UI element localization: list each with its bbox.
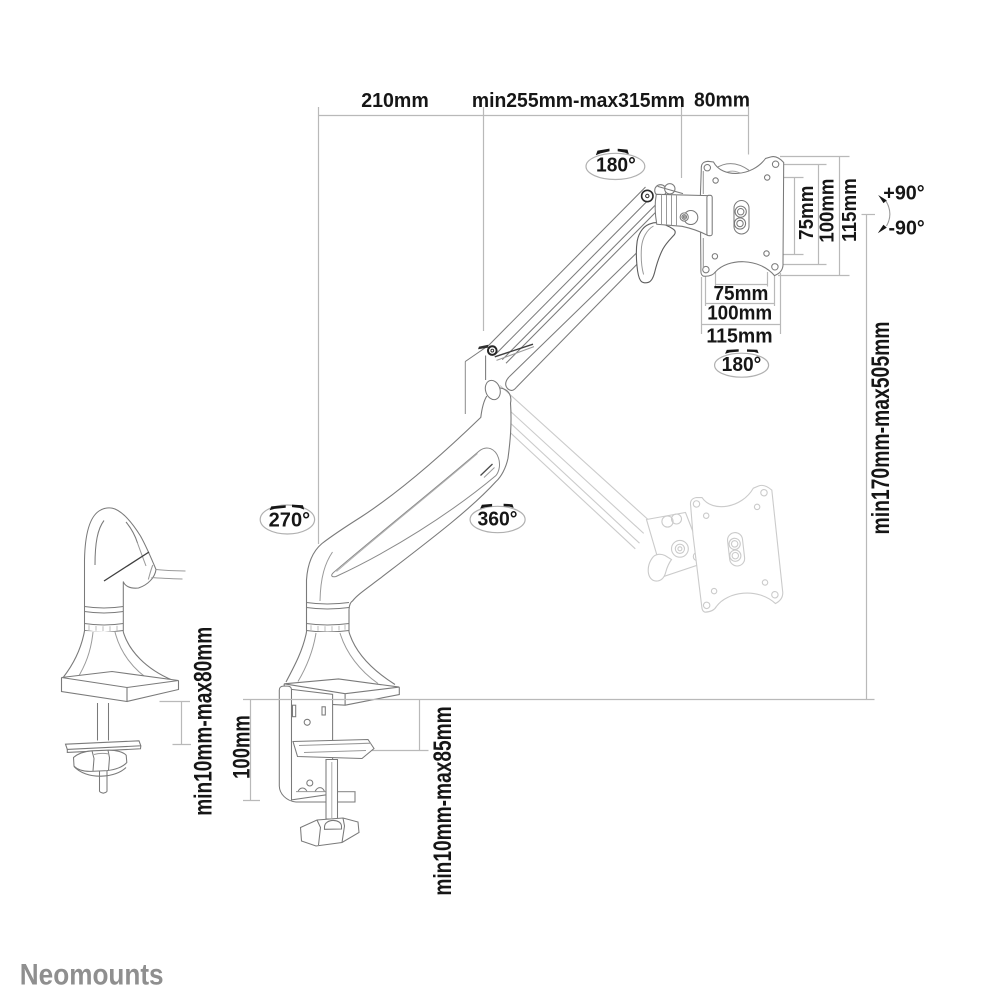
svg-text:270°: 270° [269,510,311,532]
svg-text:180°: 180° [596,155,636,177]
svg-text:-90°: -90° [889,217,925,239]
svg-text:115mm: 115mm [839,178,861,242]
svg-text:100mm: 100mm [707,303,772,325]
svg-text:115mm: 115mm [706,325,772,347]
svg-text:min10mm-max85mm: min10mm-max85mm [429,706,457,895]
svg-text:100mm: 100mm [816,179,838,243]
svg-text:180°: 180° [722,354,762,376]
svg-text:min10mm-max80mm: min10mm-max80mm [190,627,218,816]
svg-text:80mm: 80mm [694,90,750,112]
svg-text:+90°: +90° [883,183,924,205]
svg-text:210mm: 210mm [361,90,429,112]
svg-text:100mm: 100mm [229,715,256,779]
svg-text:Neomounts: Neomounts [20,959,164,992]
svg-text:360°: 360° [477,508,517,530]
svg-text:min170mm-max505mm: min170mm-max505mm [867,322,895,535]
svg-text:min255mm-max315mm: min255mm-max315mm [472,90,685,112]
svg-text:75mm: 75mm [796,186,818,240]
